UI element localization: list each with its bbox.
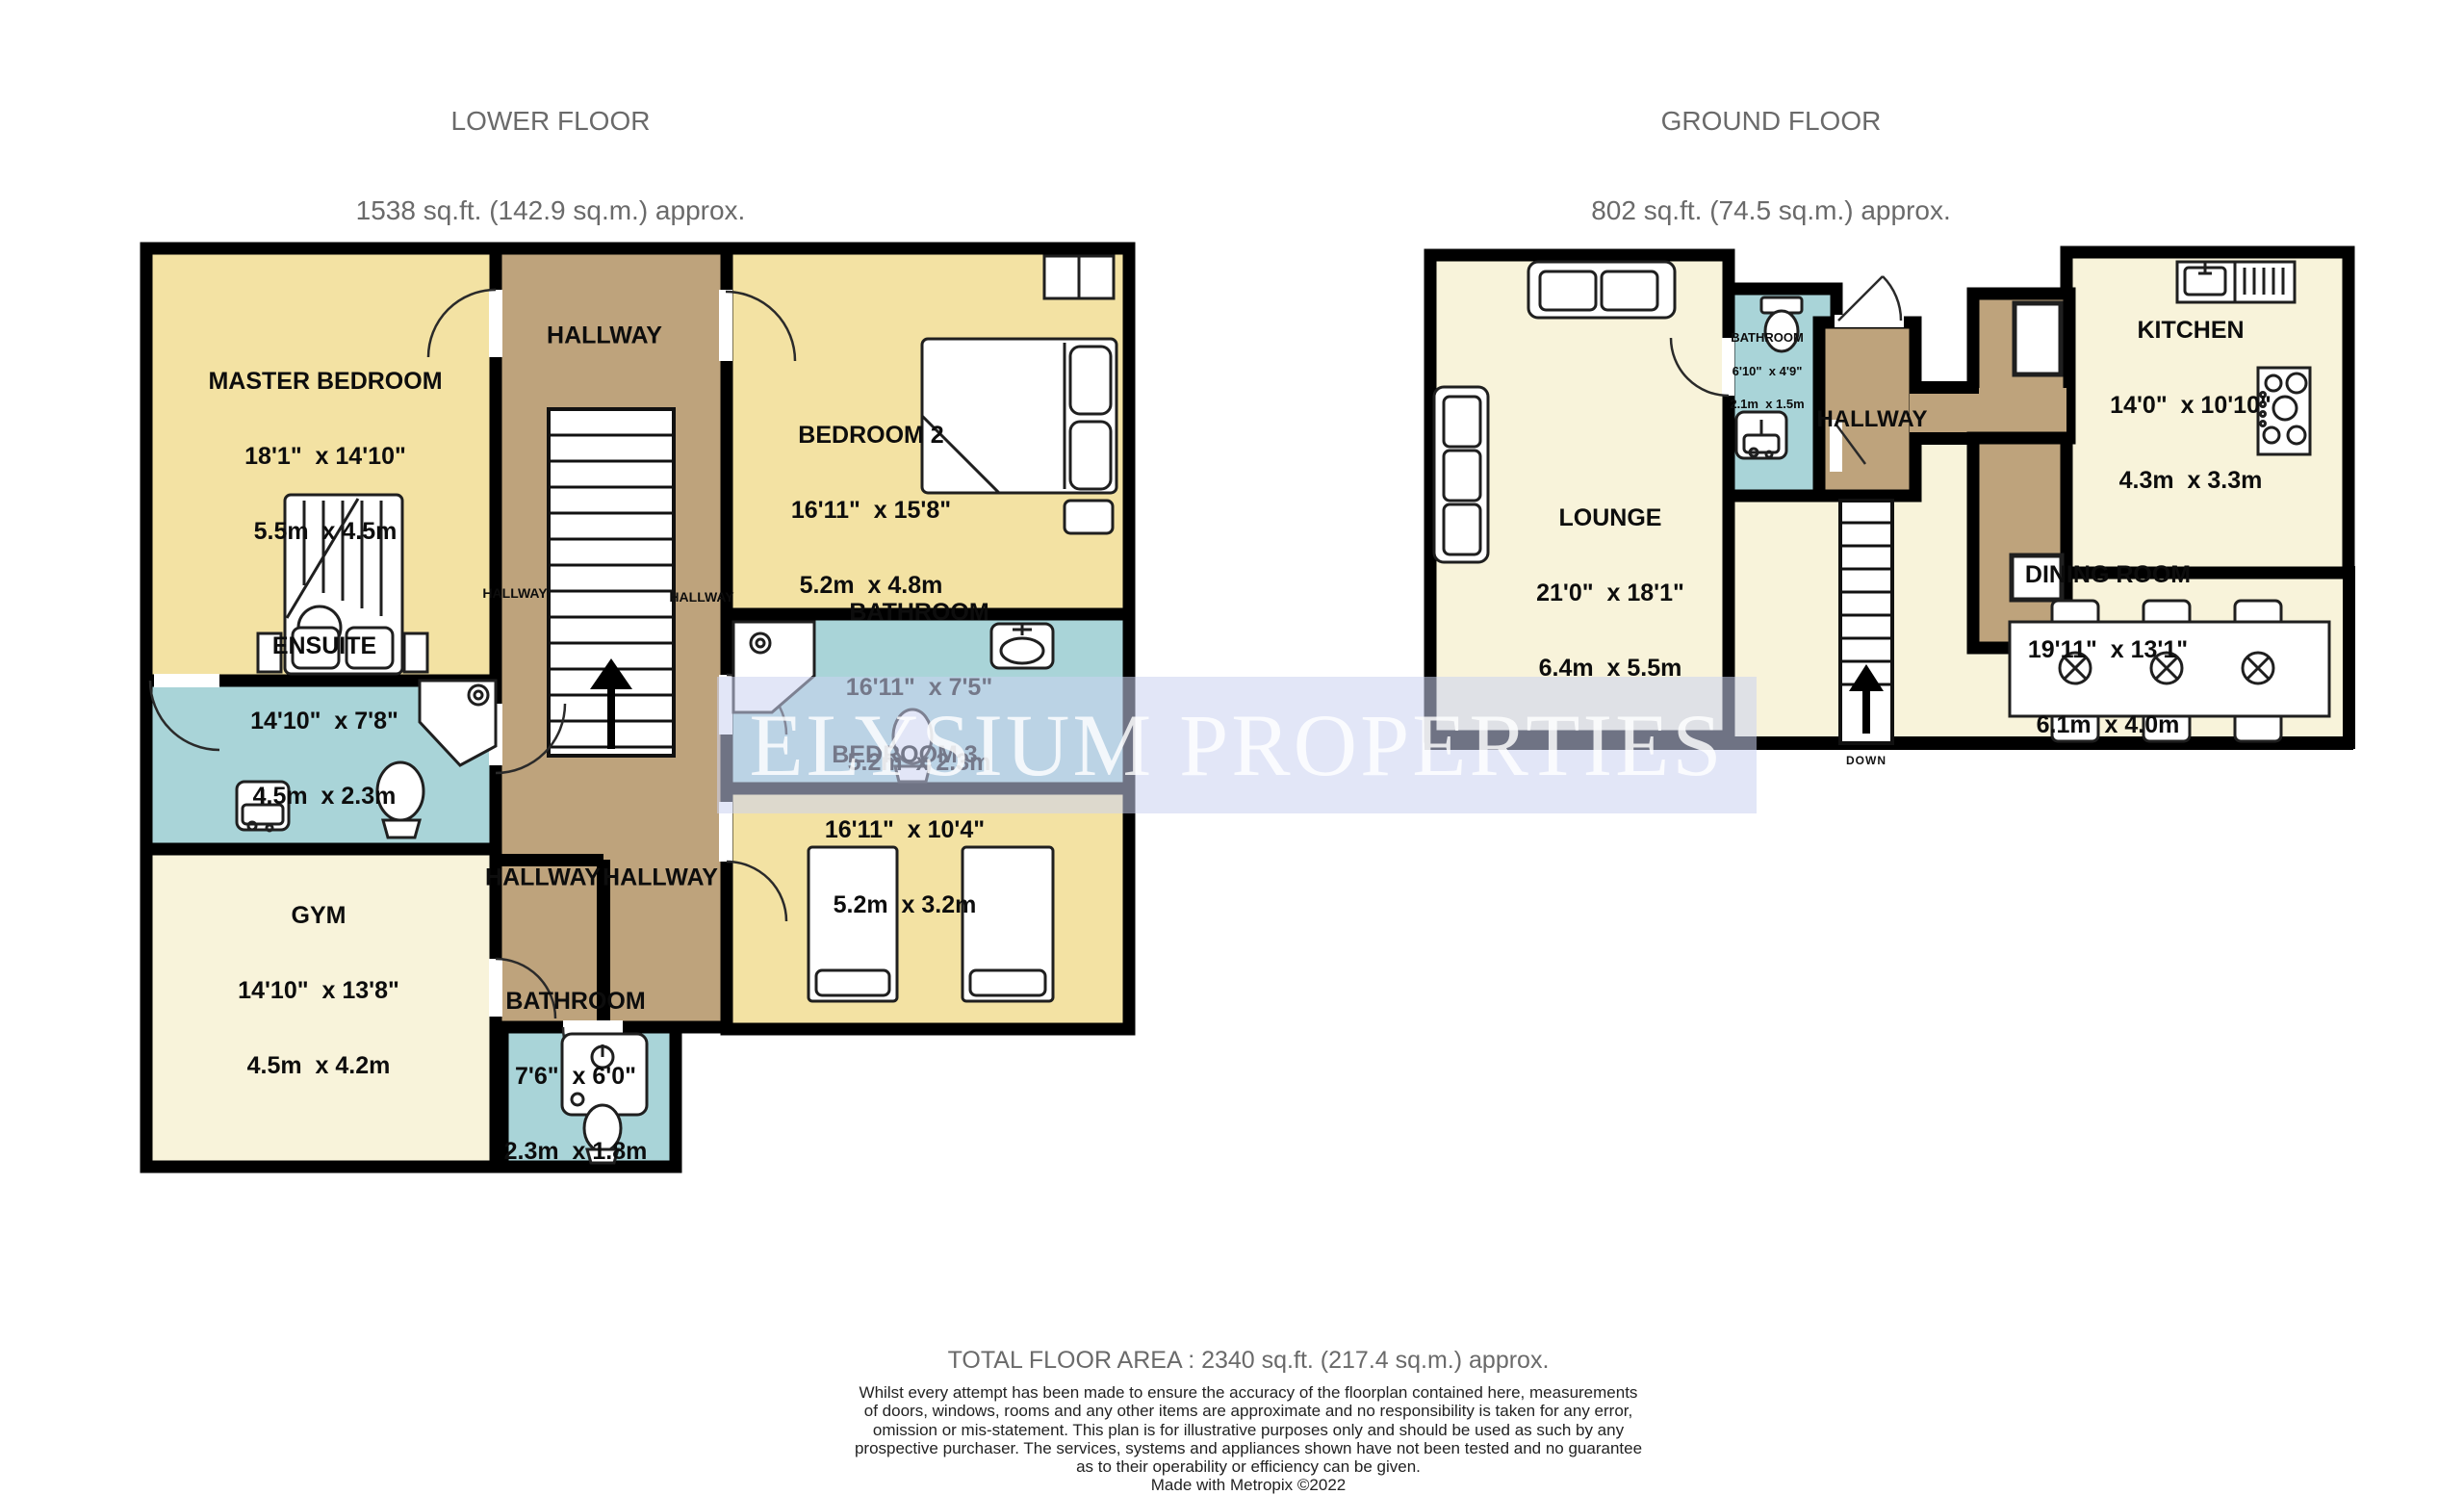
room-name: BATHROOM <box>504 989 648 1014</box>
pillow-icon <box>1070 347 1111 414</box>
label-stairs-down: DOWN <box>1846 754 1886 767</box>
sofa-icon <box>1528 262 1675 318</box>
label-ensuite: ENSUITE 14'10" x 7'8" 4.5m x 2.3m <box>250 583 398 859</box>
room-dims-imperial: 14'10" x 13'8" <box>238 978 399 1003</box>
footer: TOTAL FLOOR AREA : 2340 sq.ft. (217.4 sq… <box>671 1346 1826 1495</box>
room-name: GYM <box>238 903 399 928</box>
floorplan-page: LOWER FLOOR 1538 sq.ft. (142.9 sq.m.) ap… <box>0 0 2464 1495</box>
bedside-table-icon <box>1065 501 1113 533</box>
sofa-icon <box>1434 387 1488 562</box>
room-dims-metric: 2.3m x 1.8m <box>504 1139 648 1164</box>
room-dims-metric: 6.1m x 4.0m <box>2025 712 2191 737</box>
door-opening <box>489 959 502 1017</box>
wall-segment <box>1910 381 1979 394</box>
room-dims-imperial: 18'1" x 14'10" <box>208 444 442 469</box>
room-name: LOUNGE <box>1536 505 1684 530</box>
metropix-credit: Made with Metropix ©2022 <box>671 1476 1826 1494</box>
pillow-icon <box>970 970 1045 995</box>
room-name: BATHROOM <box>1730 332 1804 344</box>
label-kitchen: KITCHEN 14'0" x 10'10" 4.3m x 3.3m <box>2110 268 2271 543</box>
room-dims-metric: 4.5m x 4.2m <box>238 1053 399 1078</box>
pillow-icon <box>1070 422 1111 489</box>
room-dims-imperial: 14'10" x 7'8" <box>250 709 398 734</box>
label-hallway-bottom-right: HALLWAY <box>603 864 718 892</box>
disclaimer-line: as to their operability or efficiency ca… <box>671 1457 1826 1476</box>
cupboard-icon <box>2015 303 2061 374</box>
disclaimer-line: of doors, windows, rooms and any other i… <box>671 1402 1826 1420</box>
label-hallway-top: HALLWAY <box>547 322 662 350</box>
up-arrow-icon <box>1862 687 1870 734</box>
room-dims-metric: 2.1m x 1.5m <box>1730 399 1804 410</box>
up-arrow-icon <box>607 685 615 749</box>
disclaimer-line: Whilst every attempt has been made to en… <box>671 1383 1826 1402</box>
room-name: BEDROOM 2 <box>791 423 951 448</box>
label-hallway-bottom-left: HALLWAY <box>485 864 601 892</box>
room-dims-imperial: 21'0" x 18'1" <box>1536 580 1684 606</box>
total-floor-area: TOTAL FLOOR AREA : 2340 sq.ft. (217.4 sq… <box>671 1346 1826 1375</box>
stairs-ground-icon <box>1840 501 1892 743</box>
pillow-icon <box>816 970 889 995</box>
room-name: KITCHEN <box>2110 318 2271 343</box>
room-dims-imperial: 16'11" x 10'4" <box>825 817 985 842</box>
label-master-bedroom: MASTER BEDROOM 18'1" x 14'10" 5.5m x 4.5… <box>208 319 442 594</box>
label-bathroom-ground: BATHROOM 6'10" x 4'9" 2.1m x 1.5m <box>1730 310 1804 432</box>
wall-segment <box>2343 566 2355 749</box>
room-dims-imperial: 19'11" x 13'1" <box>2025 637 2191 662</box>
room-name: BATHROOM <box>846 600 992 625</box>
room-dims-metric: 5.5m x 4.5m <box>208 519 442 544</box>
room-dims-imperial: 6'10" x 4'9" <box>1730 365 1804 376</box>
room-dims-imperial: 7'6" x 6'0" <box>504 1064 648 1089</box>
room-dims-imperial: 16'11" x 15'8" <box>791 498 951 523</box>
room-hallway-connector <box>1910 388 2066 438</box>
room-dims-metric: 4.5m x 2.3m <box>250 784 398 809</box>
label-hallway-ground: HALLWAY <box>1816 406 1927 433</box>
entrance-door-arc <box>1838 276 1901 321</box>
room-name: ENSUITE <box>250 633 398 658</box>
disclaimer-line: prospective purchaser. The services, sys… <box>671 1439 1826 1457</box>
label-gym: GYM 14'10" x 13'8" 4.5m x 4.2m <box>238 853 399 1128</box>
stairs-lower-icon <box>549 409 674 756</box>
disclaimer-line: omission or mis-statement. This plan is … <box>671 1421 1826 1439</box>
door-opening <box>154 674 219 687</box>
disclaimer-text: Whilst every attempt has been made to en… <box>671 1383 1826 1495</box>
label-hallway-stair-left: HALLWAY <box>482 585 547 601</box>
label-hallway-stair-right: HALLWAY <box>669 589 733 605</box>
watermark-banner: ELYSIUM PROPERTIES <box>717 677 1757 813</box>
room-name: DINING ROOM <box>2025 562 2191 587</box>
door-opening <box>719 290 732 361</box>
room-dims-metric: 4.3m x 3.3m <box>2110 468 2271 493</box>
room-dims-imperial: 14'0" x 10'10" <box>2110 393 2271 418</box>
door-opening <box>489 290 502 357</box>
room-name: MASTER BEDROOM <box>208 369 442 394</box>
label-bathroom-small: BATHROOM 7'6" x 6'0" 2.3m x 1.8m <box>504 939 648 1214</box>
label-dining-room: DINING ROOM 19'11" x 13'1" 6.1m x 4.0m <box>2025 512 2191 787</box>
room-dims-metric: 5.2m x 3.2m <box>825 892 985 917</box>
door-opening <box>1835 315 1904 327</box>
bedside-table-icon <box>404 633 427 672</box>
